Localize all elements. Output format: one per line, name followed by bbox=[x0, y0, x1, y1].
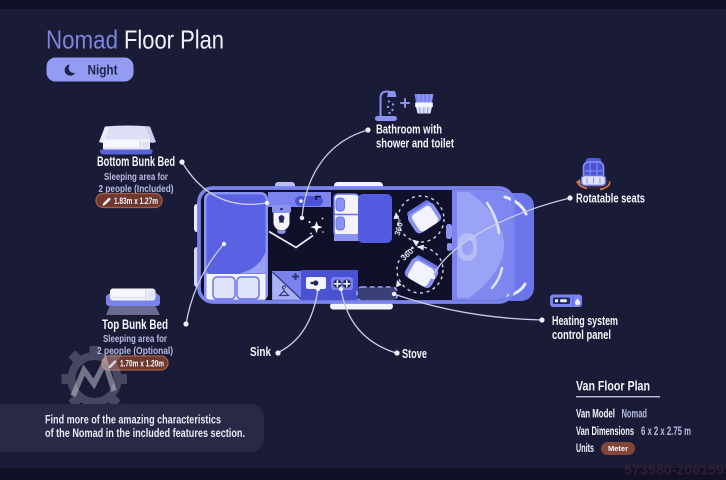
svg-text:Units: Units bbox=[576, 443, 594, 455]
svg-text:Stove: Stove bbox=[402, 347, 427, 361]
svg-text:Nomad: Nomad bbox=[622, 408, 648, 420]
svg-text:Top Bunk Bed: Top Bunk Bed bbox=[102, 317, 168, 332]
svg-text:1.70m x 1.20m: 1.70m x 1.20m bbox=[120, 358, 164, 368]
svg-text:Van Dimensions: Van Dimensions bbox=[576, 426, 634, 438]
svg-text:2 people (Optional): 2 people (Optional) bbox=[97, 345, 173, 357]
svg-text:1.83m x 1.27m: 1.83m x 1.27m bbox=[114, 196, 158, 206]
svg-text:573580-20815992: 573580-20815992 bbox=[624, 462, 726, 479]
svg-text:Van Model: Van Model bbox=[576, 408, 615, 420]
svg-text:of the Nomad in the included f: of the Nomad in the included features se… bbox=[45, 428, 245, 440]
svg-text:Sleeping area for: Sleeping area for bbox=[103, 333, 167, 345]
svg-text:Van Floor Plan: Van Floor Plan bbox=[576, 378, 650, 394]
svg-text:Nomad: Nomad bbox=[46, 25, 118, 55]
svg-text:Floor Plan: Floor Plan bbox=[124, 25, 224, 55]
svg-text:Sink: Sink bbox=[250, 345, 271, 359]
svg-text:Sleeping area for: Sleeping area for bbox=[104, 171, 168, 183]
svg-text:Meter: Meter bbox=[608, 444, 628, 453]
svg-text:Heating system: Heating system bbox=[552, 314, 618, 328]
svg-text:control panel: control panel bbox=[552, 328, 611, 342]
svg-text:Bathroom with: Bathroom with bbox=[376, 123, 442, 137]
svg-text:shower and toilet: shower and toilet bbox=[376, 137, 455, 151]
svg-text:Find more of the amazing chara: Find more of the amazing characteristics bbox=[45, 415, 221, 427]
svg-text:6 x 2 x 2.75 m: 6 x 2 x 2.75 m bbox=[641, 426, 691, 438]
svg-text:Rotatable seats: Rotatable seats bbox=[576, 192, 645, 206]
svg-text:Night: Night bbox=[88, 62, 118, 77]
svg-text:Bottom Bunk Bed: Bottom Bunk Bed bbox=[97, 154, 175, 169]
